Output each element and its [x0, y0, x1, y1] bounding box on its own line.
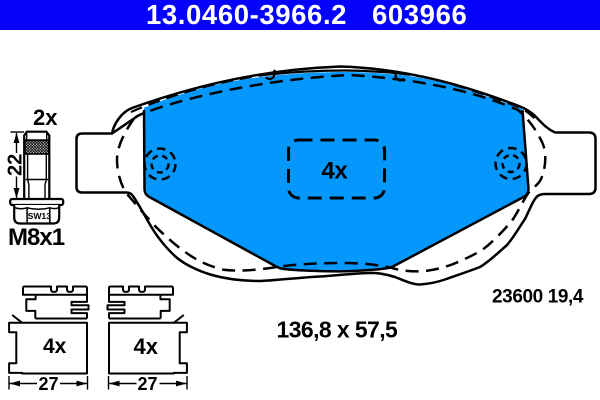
- svg-text:23600 19,4: 23600 19,4: [492, 287, 584, 308]
- svg-text:4x: 4x: [43, 335, 67, 358]
- svg-text:4x: 4x: [322, 158, 349, 185]
- svg-text:SW13: SW13: [28, 211, 52, 221]
- svg-text:13.0460-3966.2: 13.0460-3966.2: [146, 0, 347, 30]
- svg-text:603966: 603966: [372, 0, 467, 30]
- svg-text:27: 27: [39, 374, 59, 394]
- svg-text:4x: 4x: [134, 334, 159, 359]
- svg-text:27: 27: [138, 374, 158, 394]
- svg-text:M8x1: M8x1: [8, 224, 65, 251]
- svg-text:2x: 2x: [33, 105, 58, 130]
- svg-text:22: 22: [5, 154, 27, 176]
- svg-text:136,8 x 57,5: 136,8 x 57,5: [277, 317, 399, 343]
